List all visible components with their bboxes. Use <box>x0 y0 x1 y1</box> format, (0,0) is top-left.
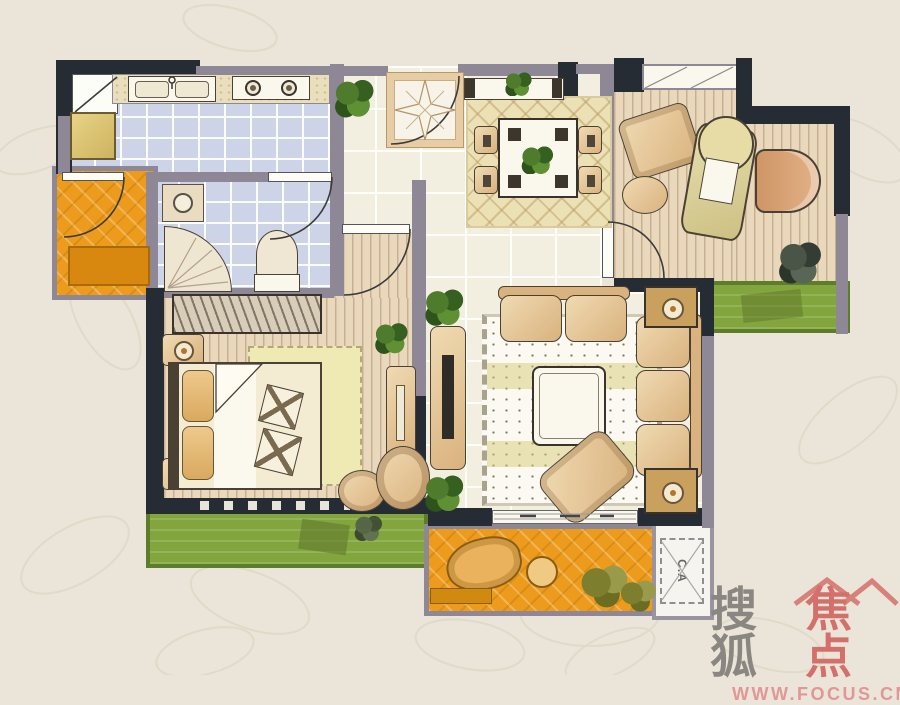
wall <box>614 58 644 92</box>
toilet-tank <box>254 274 300 292</box>
toilet <box>252 230 302 294</box>
kitchen-sink <box>128 76 216 102</box>
refrigerator <box>70 112 116 160</box>
balcony-door-leaf <box>62 172 124 181</box>
wall <box>702 336 714 528</box>
ottoman <box>622 176 668 214</box>
bedroom-corridor-floor <box>334 232 412 298</box>
burner <box>281 80 297 96</box>
sink-basin <box>175 81 209 98</box>
seat-cushion <box>636 370 690 422</box>
washbasin <box>162 184 204 222</box>
bedroom-window <box>200 501 350 510</box>
sideboard-end <box>465 79 475 98</box>
dining-chair <box>578 166 602 194</box>
plant <box>618 578 658 612</box>
dining-chair <box>578 126 602 154</box>
wall <box>344 66 388 76</box>
bedroom-door-leaf <box>342 224 410 234</box>
tv-cabinet <box>430 326 466 470</box>
desk-monitor <box>699 157 740 204</box>
ac-unit-label: C.A <box>675 559 689 583</box>
round-chair <box>376 446 430 510</box>
wall <box>836 214 848 334</box>
gas-stove <box>232 76 310 100</box>
sideboard-end <box>552 79 562 98</box>
wall <box>834 106 850 216</box>
burner <box>245 80 261 96</box>
dining-chair <box>474 126 498 154</box>
basin-bowl <box>173 193 193 213</box>
watermark: 搜狐 焦点 WWW.FOCUS.CN <box>710 586 900 664</box>
wall <box>152 172 270 182</box>
plant <box>424 288 466 326</box>
watermark-brand-red: 焦点 <box>805 586 900 680</box>
sink-basin <box>135 81 169 98</box>
dresser <box>386 366 416 458</box>
double-bed <box>168 362 322 490</box>
wall <box>58 116 70 174</box>
entry-mat <box>386 72 464 148</box>
plant <box>334 78 376 118</box>
seat-cushion <box>500 295 562 342</box>
plant <box>776 238 826 286</box>
garden-sketch <box>298 519 350 555</box>
wall <box>700 292 714 336</box>
entry-mat-inner <box>394 80 456 140</box>
bathroom-door-leaf <box>268 172 332 182</box>
study-door-leaf <box>602 222 614 278</box>
plant <box>504 72 534 96</box>
round-table <box>526 556 558 588</box>
wall <box>330 178 344 296</box>
wall <box>576 64 602 74</box>
balcony-mat <box>68 246 150 286</box>
plant <box>374 322 410 354</box>
garden-sprig <box>352 514 386 542</box>
toilet-bowl <box>256 230 298 278</box>
plant <box>520 146 556 174</box>
three-seat-sofa <box>636 314 702 478</box>
ac-unit-outline: C.A <box>660 538 704 604</box>
plant <box>424 474 466 512</box>
loveseat <box>498 286 630 344</box>
mirror <box>396 385 405 441</box>
sheet <box>214 364 256 488</box>
headboard <box>168 362 177 490</box>
seat-cushion <box>565 295 627 342</box>
lamp-table <box>644 286 698 328</box>
armchair <box>755 149 821 213</box>
pillow <box>182 426 214 480</box>
floor-plan-page: { "watermark": { "brand_gray": "搜狐", "br… <box>0 0 900 675</box>
watermark-url: WWW.FOCUS.CN <box>732 684 900 705</box>
dining-chair <box>474 166 498 194</box>
pillow <box>182 370 214 422</box>
wall <box>736 106 850 124</box>
wardrobe <box>172 294 322 334</box>
lamp-table <box>644 468 698 514</box>
balcony-step <box>430 588 492 604</box>
watermark-brand-gray: 搜狐 <box>710 586 805 680</box>
study-window <box>642 64 738 90</box>
tv-screen <box>442 355 454 439</box>
